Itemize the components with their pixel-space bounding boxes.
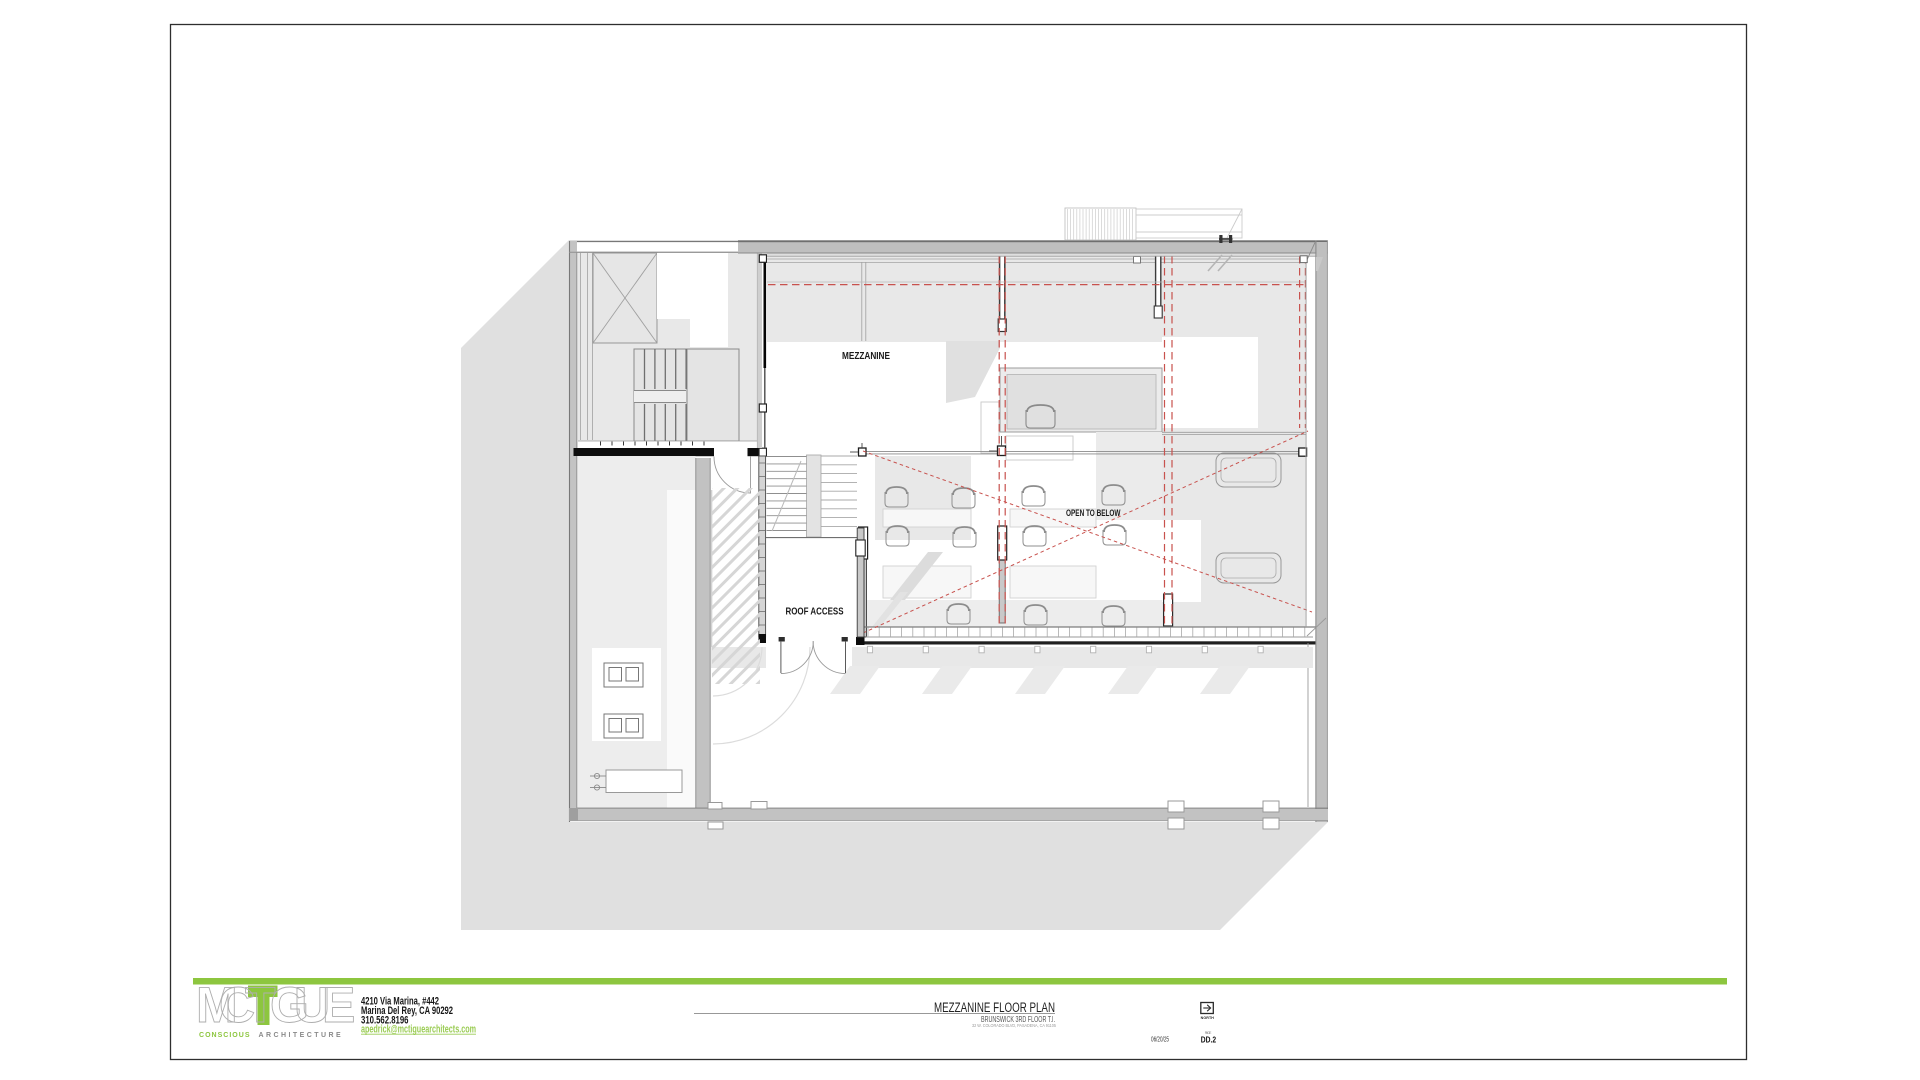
svg-text:E: E — [322, 977, 355, 1033]
svg-text:06/20/25: 06/20/25 — [1151, 1037, 1169, 1044]
svg-text:MEZZANINE: MEZZANINE — [842, 351, 890, 362]
svg-text:apedrick@mctiguearchitects.com: apedrick@mctiguearchitects.com — [361, 1024, 476, 1036]
svg-text:CONSCIOUS: CONSCIOUS — [199, 1032, 251, 1039]
svg-text:DD.2: DD.2 — [1201, 1036, 1217, 1045]
svg-text:ROOF ACCESS: ROOF ACCESS — [786, 607, 844, 618]
svg-text:NORTH: NORTH — [1201, 1016, 1215, 1020]
svg-text:MEZZANINE FLOOR PLAN: MEZZANINE FLOOR PLAN — [934, 1000, 1055, 1015]
svg-text:ARCHITECTURE: ARCHITECTURE — [259, 1032, 343, 1039]
svg-text:32 W. COLORADO BLVD, PASADENA,: 32 W. COLORADO BLVD, PASADENA, CA 91105 — [972, 1023, 1056, 1028]
svg-text:OPEN TO BELOW: OPEN TO BELOW — [1066, 508, 1121, 519]
